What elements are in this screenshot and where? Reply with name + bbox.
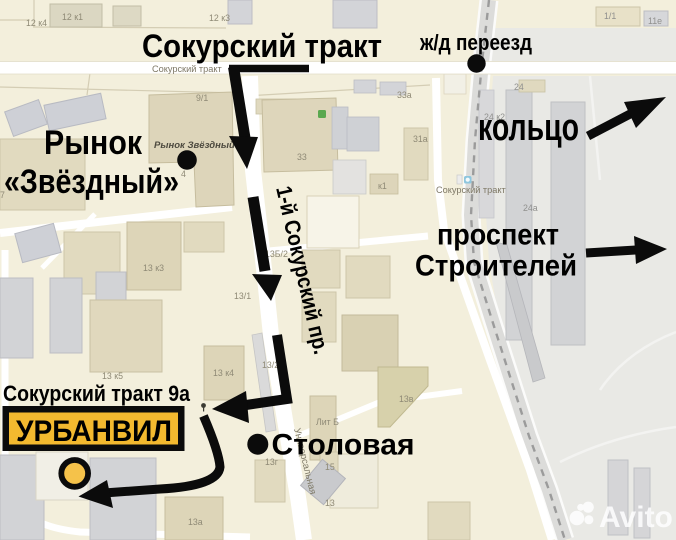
svg-text:12 к3: 12 к3: [209, 13, 230, 23]
svg-text:13 к3: 13 к3: [143, 263, 164, 273]
svg-text:24а: 24а: [523, 203, 538, 213]
svg-text:13/1: 13/1: [234, 291, 251, 301]
svg-text:Лит Б: Лит Б: [316, 417, 339, 427]
svg-text:Сокурский тракт: Сокурский тракт: [436, 185, 506, 195]
svg-text:Рынок Звёздный: Рынок Звёздный: [154, 140, 235, 151]
svg-text:Сокурский тракт: Сокурский тракт: [152, 64, 222, 74]
svg-text:к1: к1: [378, 181, 387, 191]
svg-text:Строителей: Строителей: [415, 250, 577, 283]
svg-text:1/1: 1/1: [604, 11, 616, 21]
svg-text:12 к1: 12 к1: [62, 12, 83, 22]
svg-text:Avito: Avito: [599, 501, 673, 534]
svg-text:13а: 13а: [188, 517, 203, 527]
svg-text:проспект: проспект: [437, 219, 559, 252]
svg-text:33: 33: [297, 152, 307, 162]
svg-text:13 к5: 13 к5: [102, 371, 123, 381]
svg-text:13 к4: 13 к4: [213, 368, 234, 378]
svg-text:13в: 13в: [399, 394, 414, 404]
svg-text:11е: 11е: [648, 16, 662, 26]
svg-text:кольцо: кольцо: [478, 107, 579, 149]
svg-text:ж/д переезд: ж/д переезд: [419, 30, 532, 55]
svg-text:УРБАНВИЛ: УРБАНВИЛ: [16, 415, 172, 448]
svg-text:31а: 31а: [413, 134, 428, 144]
svg-text:Рынок: Рынок: [44, 124, 143, 162]
svg-text:4: 4: [181, 169, 186, 179]
svg-text:24: 24: [514, 82, 524, 92]
svg-text:13Б/2: 13Б/2: [265, 249, 288, 259]
svg-text:Столовая: Столовая: [272, 429, 415, 462]
svg-text:15: 15: [325, 462, 335, 472]
svg-text:Сокурский тракт: Сокурский тракт: [142, 28, 382, 64]
svg-text:9/1: 9/1: [196, 93, 208, 103]
svg-text:33а: 33а: [397, 90, 412, 100]
svg-text:Сокурский тракт 9а: Сокурский тракт 9а: [3, 381, 191, 406]
svg-text:«Звёздный»: «Звёздный»: [4, 163, 179, 201]
svg-text:13: 13: [325, 498, 335, 508]
svg-text:12 к4: 12 к4: [26, 18, 47, 28]
